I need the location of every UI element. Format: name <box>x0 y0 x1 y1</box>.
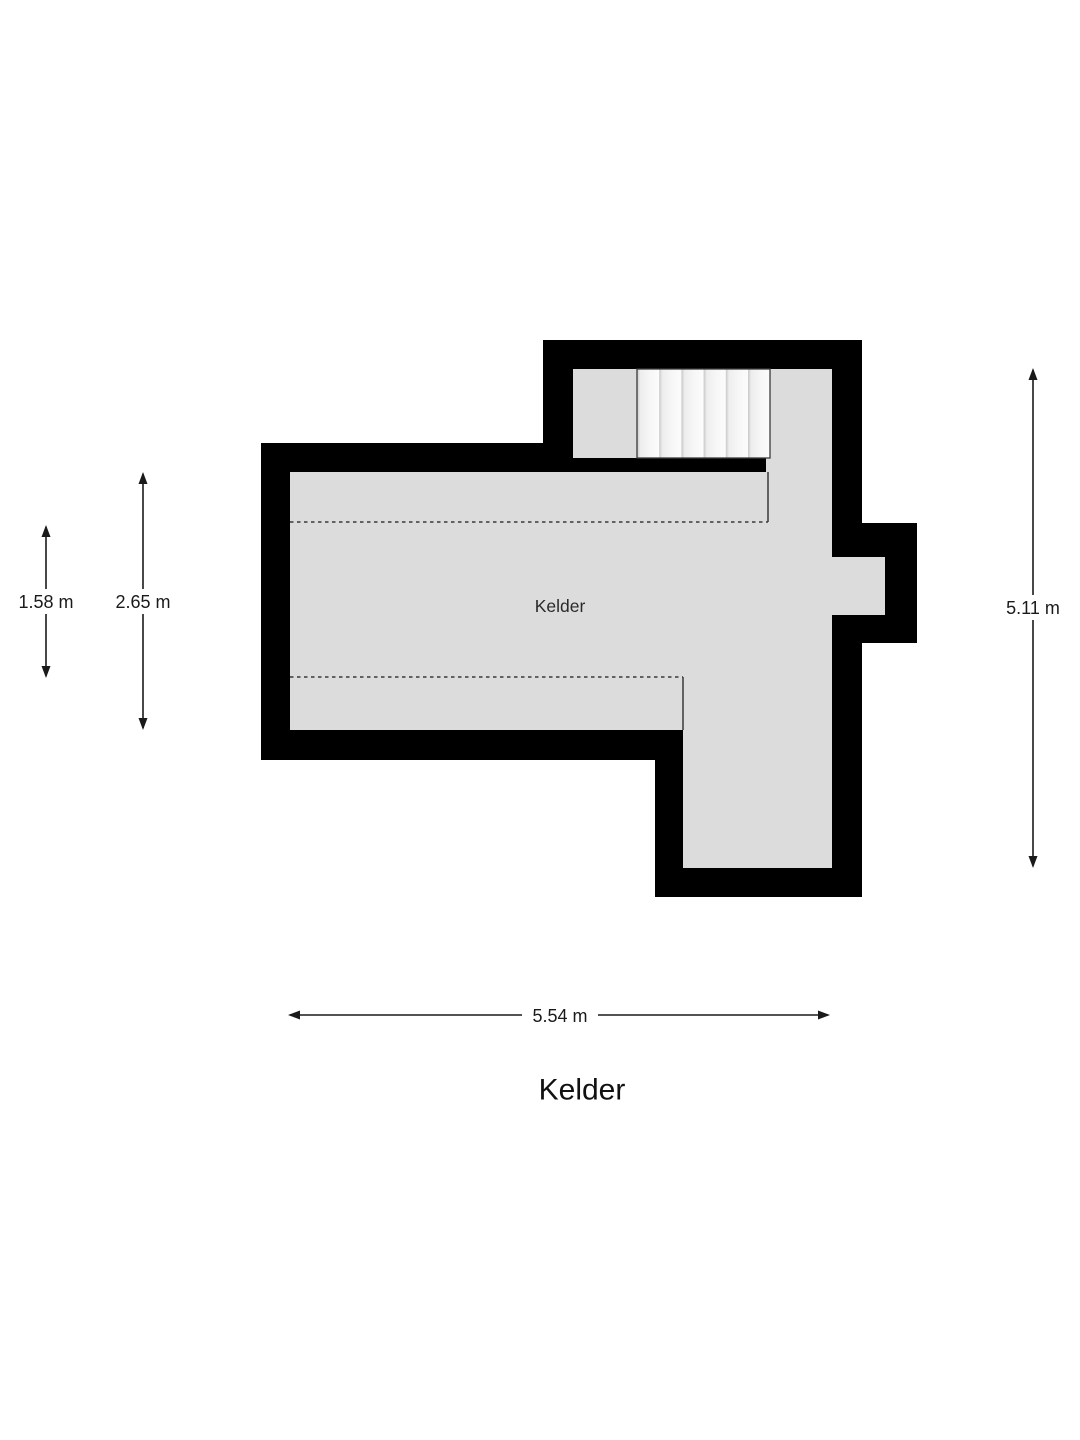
dimension-5-11-label: 5.11 m <box>1006 598 1060 618</box>
dimension-1-58-label: 1.58 m <box>18 592 73 612</box>
room-label: Kelder <box>535 596 586 616</box>
floor-plan-page: Kelder 1.58 m 2.65 m 5.11 m <box>0 0 1080 1440</box>
stair-treads <box>637 369 770 458</box>
staircase <box>637 369 770 458</box>
floor-plan-svg: Kelder 1.58 m 2.65 m 5.11 m <box>0 0 1080 1440</box>
dimension-2-65-label: 2.65 m <box>115 592 170 612</box>
floor-plan-title: Kelder <box>539 1074 626 1107</box>
dimension-5-54-label: 5.54 m <box>532 1006 587 1026</box>
